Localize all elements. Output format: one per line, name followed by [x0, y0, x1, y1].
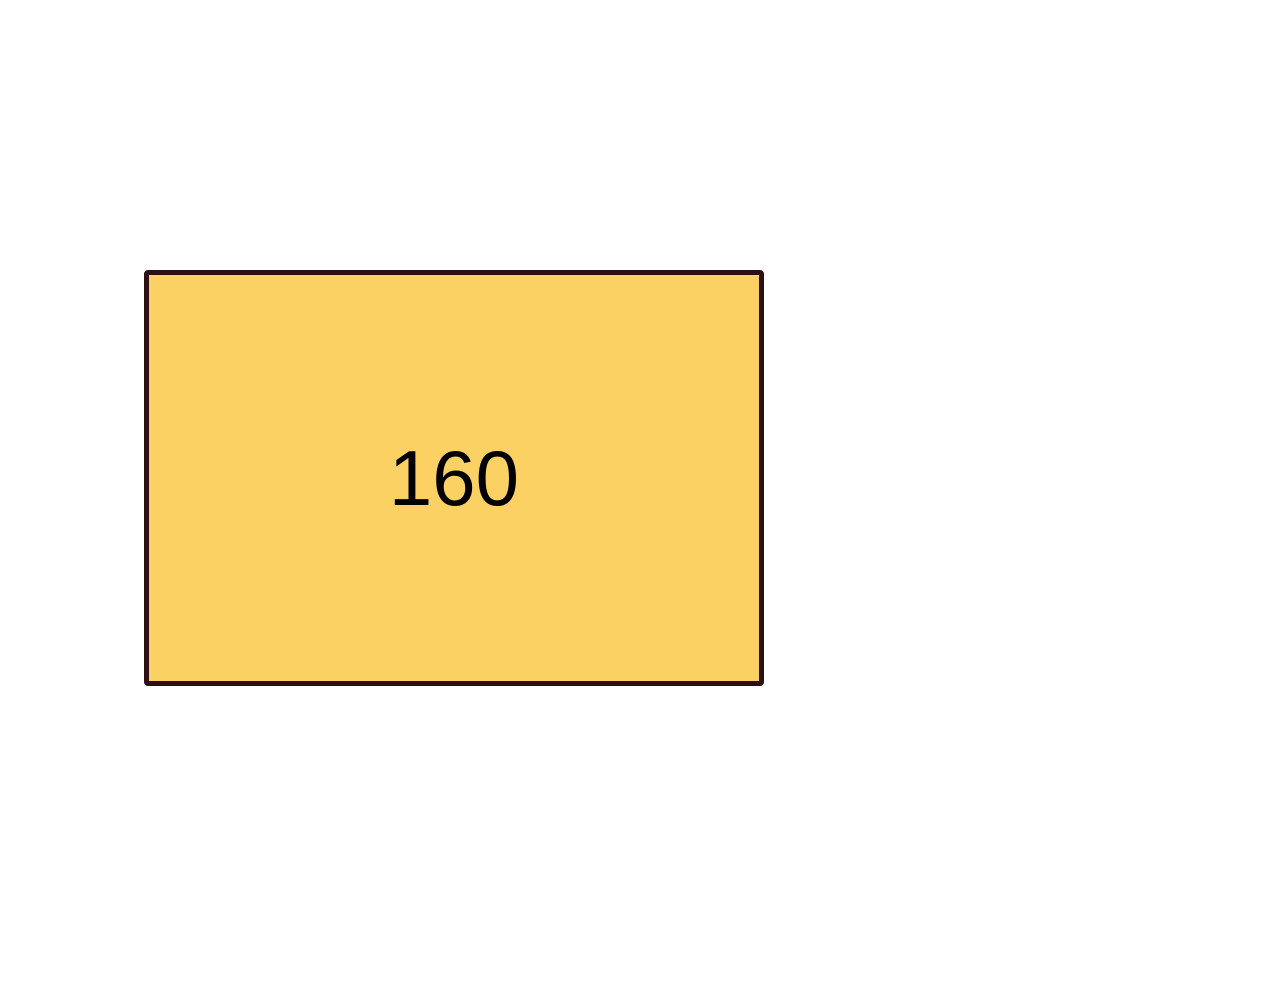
labeled-rectangle: 160 — [144, 270, 764, 686]
rectangle-value-label: 160 — [389, 439, 519, 517]
drawing-canvas: 160 — [0, 0, 1280, 1000]
